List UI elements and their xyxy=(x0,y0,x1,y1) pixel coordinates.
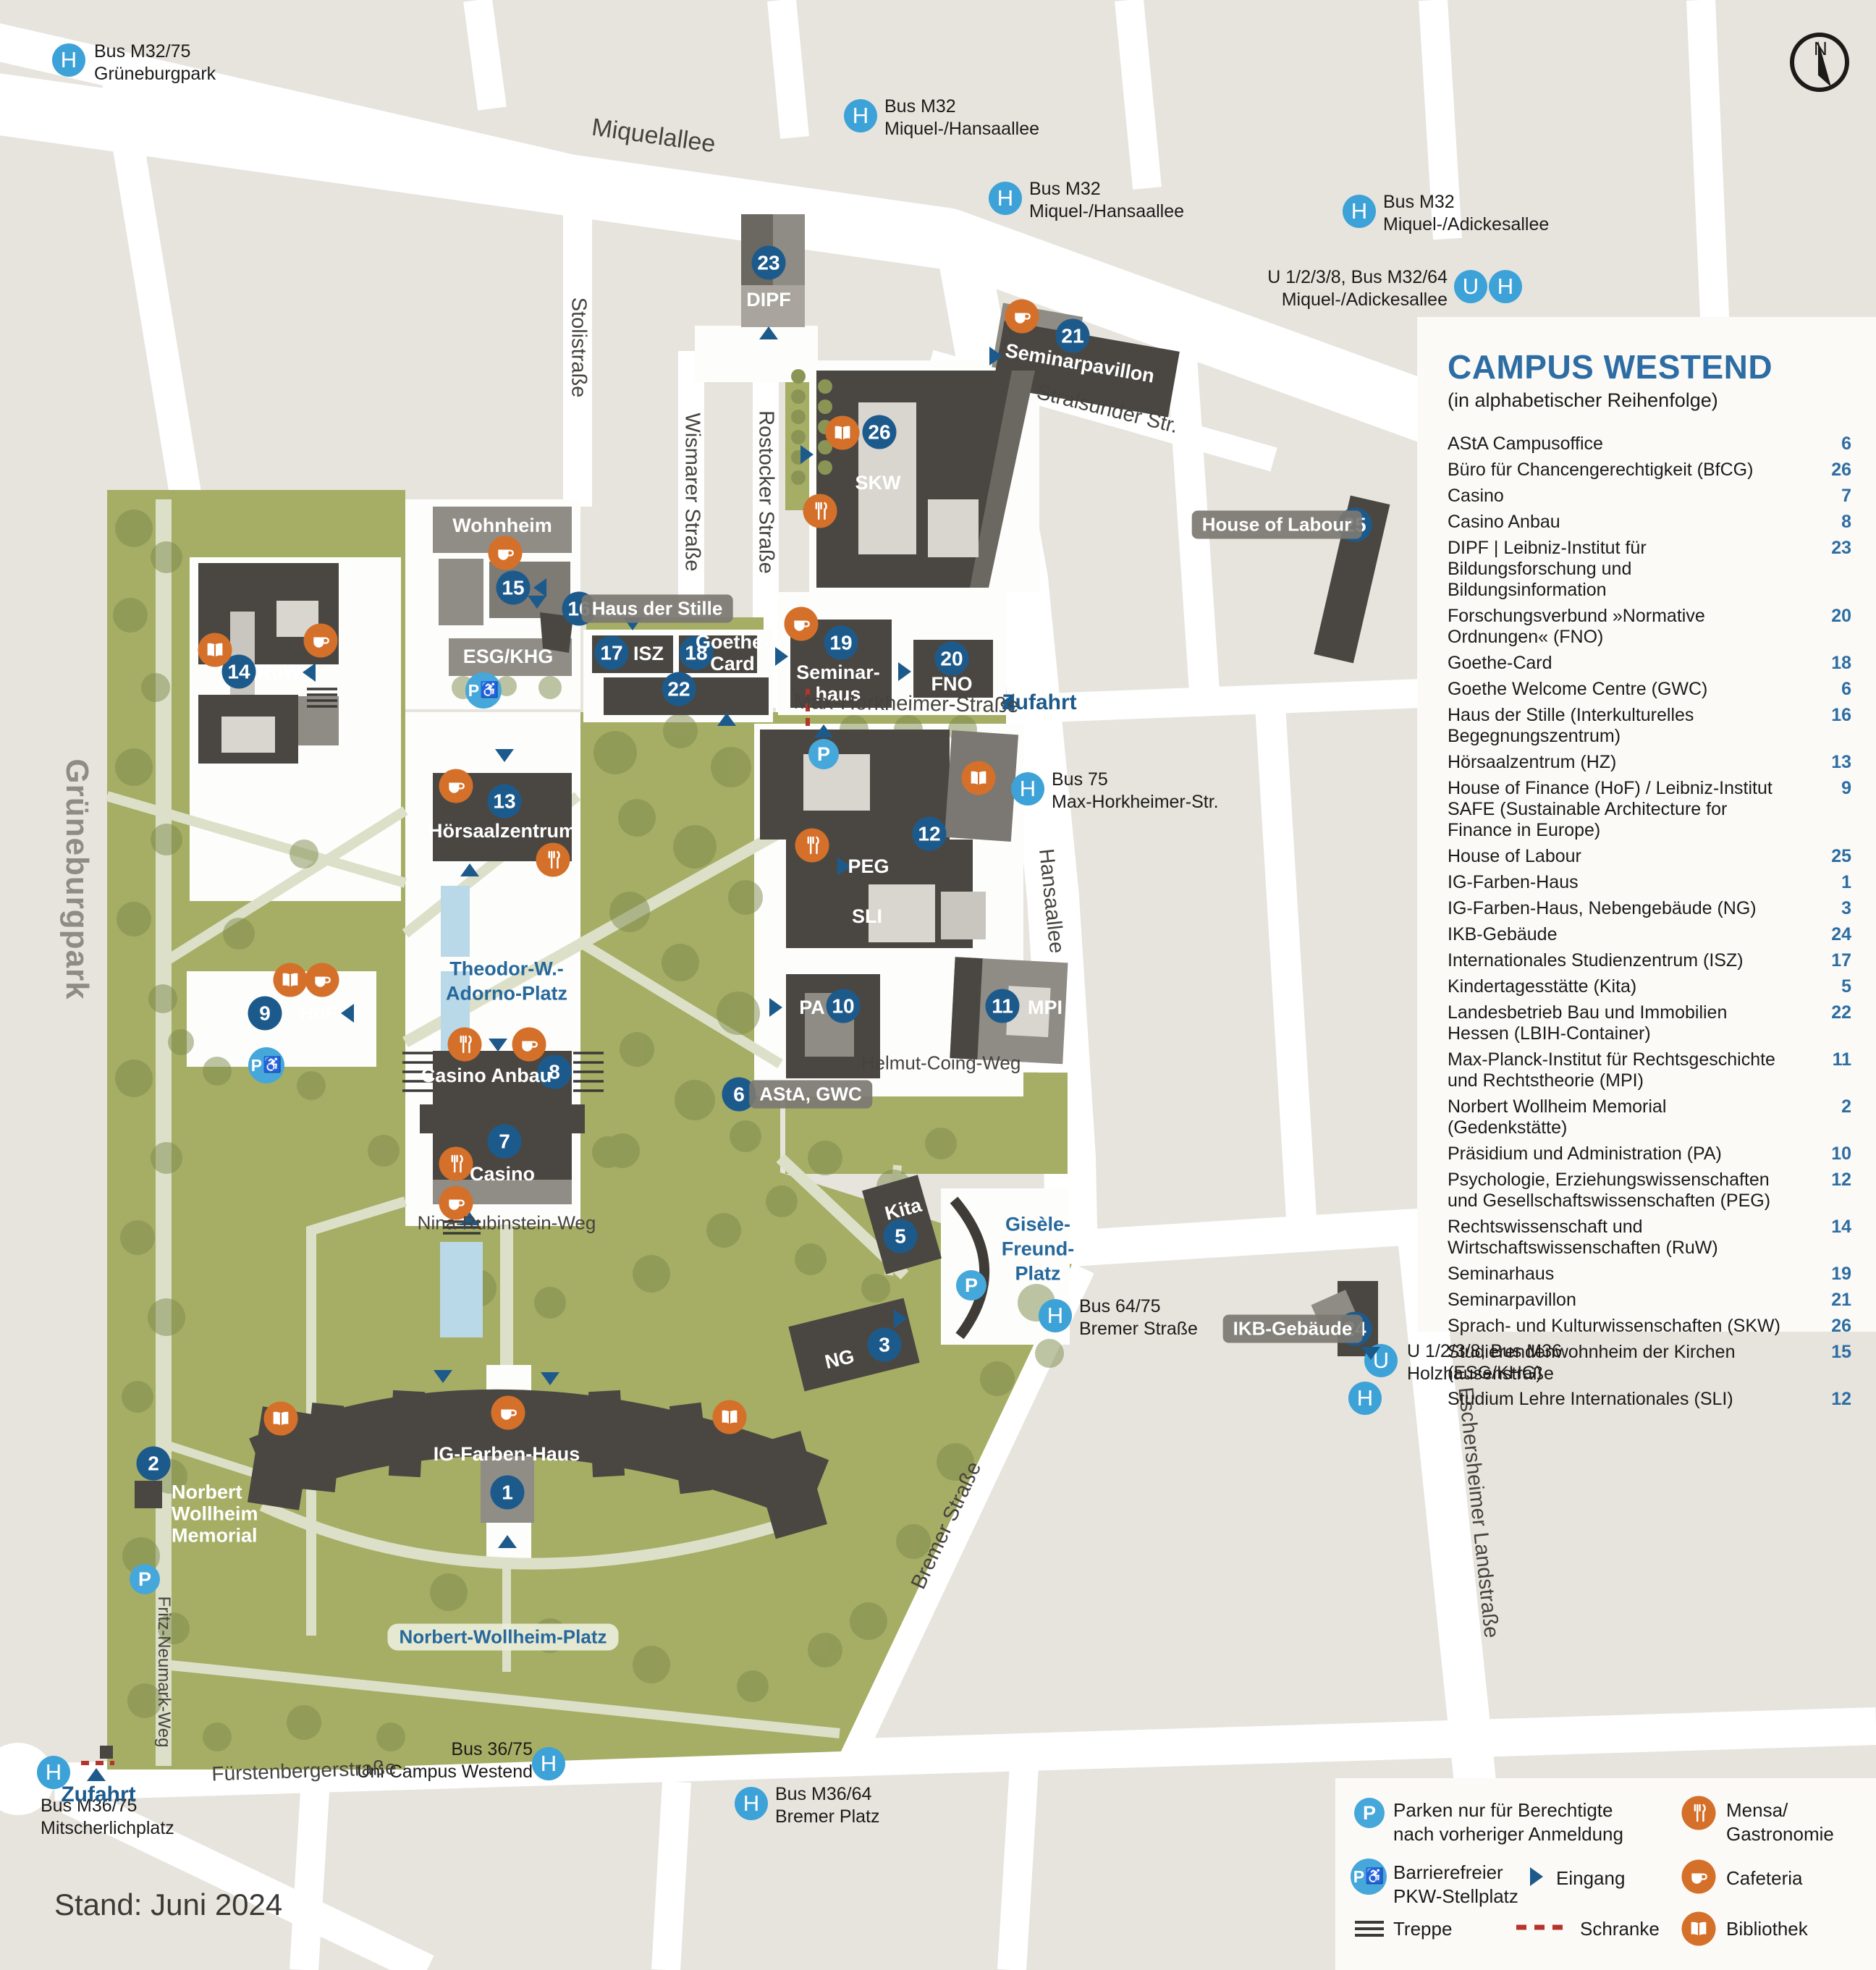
accessible-parking-icon: P♿ xyxy=(465,672,502,709)
building-badge-9: 9 xyxy=(248,997,282,1031)
building-label: SKW xyxy=(855,472,901,494)
building-badge-11: 11 xyxy=(986,989,1020,1023)
bus-stop-icon: H xyxy=(1348,1382,1382,1415)
building-number: 17 xyxy=(1822,950,1851,971)
building-list: AStA Campusoffice6Büro für Chancengerech… xyxy=(1448,434,1851,1410)
building-badge-17: 17 xyxy=(595,636,629,670)
building-number: 3 xyxy=(1833,898,1851,919)
cafeteria-icon xyxy=(489,536,523,570)
campus-map: { "compass": {"label": "N"}, "footer": {… xyxy=(0,0,1876,1970)
building-label: NG xyxy=(823,1345,856,1374)
building-list-row: IKB-Gebäude24 xyxy=(1448,924,1851,945)
cafeteria-icon xyxy=(304,624,338,658)
entrance-icon xyxy=(341,1004,354,1023)
street-label: Nina-Rubinstein-Weg xyxy=(418,1212,596,1235)
accessible-parking-icon: P♿ xyxy=(248,1047,284,1083)
entrance-icon xyxy=(541,1372,559,1385)
cafeteria-icon xyxy=(305,963,339,997)
building-label: HoF xyxy=(300,1002,337,1024)
building-label: ISZ xyxy=(633,643,664,664)
building-name: Goethe Welcome Centre (GWC) xyxy=(1448,679,1707,700)
zufahrt-label: Zufahrt xyxy=(1002,690,1076,715)
entrance-icon xyxy=(775,647,788,666)
entrance-icon xyxy=(498,1535,517,1548)
building-list-row: Haus der Stille (Interkulturelles Begegn… xyxy=(1448,705,1851,747)
building-index-panel: CAMPUS WESTEND (in alphabetischer Reihen… xyxy=(1417,317,1876,1332)
building-name: Seminarpavillon xyxy=(1448,1290,1576,1311)
building-name: Seminarhaus xyxy=(1448,1264,1554,1285)
building-list-row: Internationales Studienzentrum (ISZ)17 xyxy=(1448,950,1851,971)
street-label: Stolistraße xyxy=(567,297,591,398)
building-number: 20 xyxy=(1822,606,1851,627)
building-name: Psychologie, Erziehungswissenschaften un… xyxy=(1448,1170,1788,1212)
building-label: FNO xyxy=(931,673,973,695)
building-badge-3: 3 xyxy=(868,1328,902,1362)
building-name: Rechtswissenschaft und Wirtschaftswissen… xyxy=(1448,1217,1788,1259)
building-pill-label: IKB-Gebäude xyxy=(1223,1315,1363,1343)
building-label: Hörsaalzentrum xyxy=(428,820,576,842)
entrance-icon xyxy=(303,663,316,682)
building-number: 1 xyxy=(1833,872,1851,893)
building-list-row: AStA Campusoffice6 xyxy=(1448,434,1851,455)
transit-stop-label: Bus M32/75Grüneburgpark xyxy=(94,41,216,85)
street-label: Max-Horkheimer-Straße xyxy=(793,690,1019,718)
building-list-row: Seminarhaus19 xyxy=(1448,1264,1851,1285)
building-label: RuW xyxy=(257,661,301,683)
entrance-icon xyxy=(894,1309,907,1328)
ubahn-stop-icon: U xyxy=(1454,270,1487,303)
building-name: AStA Campusoffice xyxy=(1448,434,1603,455)
parking-icon: P xyxy=(808,739,839,769)
building-list-row: Goethe-Card18 xyxy=(1448,653,1851,674)
bibliothek-icon xyxy=(264,1402,298,1436)
cafeteria-icon xyxy=(1682,1860,1716,1894)
legend-eingang: Eingang xyxy=(1556,1867,1625,1890)
cafeteria-icon xyxy=(512,1028,546,1062)
transit-stop-label: Bus M36/64Bremer Platz xyxy=(775,1783,879,1828)
transit-stop-label: Bus 75Max-Horkheimer-Str. xyxy=(1052,769,1219,813)
building-label: PEG xyxy=(848,855,889,877)
building-label: ESG/KHG xyxy=(463,646,554,667)
entrance-icon xyxy=(898,662,911,681)
building-badge-1: 1 xyxy=(491,1476,525,1510)
building-number: 12 xyxy=(1822,1389,1851,1410)
building-list-row: Hörsaalzentrum (HZ)13 xyxy=(1448,752,1851,773)
building-list-row: IG-Farben-Haus, Nebengebäude (NG)3 xyxy=(1448,898,1851,919)
bibliothek-icon xyxy=(198,633,232,667)
panel-subtitle: (in alphabetischer Reihenfolge) xyxy=(1448,389,1851,412)
building-name: Studierendenwohnheim der Kirchen (ESG/KH… xyxy=(1448,1342,1788,1384)
legend-cafeteria: Cafeteria xyxy=(1726,1867,1803,1890)
building-label: Goethe- Card xyxy=(696,631,769,675)
building-label: Casino xyxy=(470,1163,535,1185)
building-badge-10: 10 xyxy=(827,989,861,1023)
building-name: House of Labour xyxy=(1448,846,1581,867)
building-name: Landesbetrieb Bau und Immobilien Hessen … xyxy=(1448,1002,1788,1044)
bibliothek-icon xyxy=(274,963,308,997)
building-label: Kita xyxy=(882,1194,924,1225)
bibliothek-icon xyxy=(1682,1912,1716,1946)
building-name: Max-Planck-Institut für Rechtsgeschichte… xyxy=(1448,1049,1788,1091)
building-number: 2 xyxy=(1833,1096,1851,1117)
building-name: House of Finance (HoF) / Leibniz-Institu… xyxy=(1448,778,1788,841)
entrance-icon xyxy=(533,578,546,597)
building-name: Kindertagesstätte (Kita) xyxy=(1448,976,1636,997)
legend-schranke: Schranke xyxy=(1580,1917,1660,1941)
building-label: Wohnheim xyxy=(452,515,552,536)
building-badge-7: 7 xyxy=(488,1125,522,1159)
legend-mensa: Mensa/Gastronomie xyxy=(1726,1798,1834,1846)
place-label: Norbert-Wollheim-Platz xyxy=(388,1624,619,1651)
building-badge-2: 2 xyxy=(137,1447,171,1481)
mensa-icon xyxy=(795,829,829,863)
building-badge-20: 20 xyxy=(935,642,969,676)
building-name: Hörsaalzentrum (HZ) xyxy=(1448,752,1616,773)
building-number: 8 xyxy=(1833,512,1851,533)
parking-icon: P xyxy=(956,1270,986,1301)
building-badge-19: 19 xyxy=(824,626,858,660)
legend-barrierefrei: BarrierefreierPKW-Stellplatz xyxy=(1393,1861,1518,1908)
building-number: 19 xyxy=(1822,1264,1851,1285)
building-pill-label: House of Labour xyxy=(1192,511,1362,539)
place-label: Grüneburgpark xyxy=(59,758,95,999)
entrance-icon xyxy=(759,326,778,339)
bus-stop-icon: H xyxy=(989,182,1022,215)
building-name: Studium Lehre Internationales (SLI) xyxy=(1448,1389,1733,1410)
building-label: SLI xyxy=(852,905,882,927)
cafeteria-icon xyxy=(439,769,473,803)
place-label: Gisèle- Freund- Platz xyxy=(1002,1212,1075,1285)
bus-stop-icon: H xyxy=(52,43,85,77)
building-name: Casino Anbau xyxy=(1448,512,1560,533)
building-list-row: House of Labour25 xyxy=(1448,846,1851,867)
entrance-icon xyxy=(989,347,1002,365)
building-name: Casino xyxy=(1448,486,1504,507)
building-badge-15: 15 xyxy=(497,571,531,605)
street-label: Hansaallee xyxy=(1034,847,1068,955)
bus-stop-icon: H xyxy=(735,1787,768,1820)
entrance-icon xyxy=(489,1039,507,1052)
building-list-row: Rechtswissenschaft und Wirtschaftswissen… xyxy=(1448,1217,1851,1259)
panel-title: CAMPUS WESTEND xyxy=(1448,347,1851,386)
legend-treppe: Treppe xyxy=(1393,1917,1452,1941)
barrier-icon xyxy=(1516,1925,1563,1930)
building-number: 23 xyxy=(1822,538,1851,559)
building-label: Casino Anbau xyxy=(421,1065,552,1086)
building-list-row: Psychologie, Erziehungswissenschaften un… xyxy=(1448,1170,1851,1212)
building-number: 24 xyxy=(1822,924,1851,945)
building-number: 10 xyxy=(1822,1143,1851,1164)
building-number: 16 xyxy=(1822,705,1851,726)
street-label: Wismarer Straße xyxy=(680,413,704,571)
bibliothek-icon xyxy=(826,416,860,450)
mensa-icon xyxy=(1682,1796,1716,1830)
building-badge-12: 12 xyxy=(913,817,947,851)
building-list-row: Studierendenwohnheim der Kirchen (ESG/KH… xyxy=(1448,1342,1851,1384)
street-label: Rostocker Straße xyxy=(754,410,778,574)
building-badge-23: 23 xyxy=(752,246,786,280)
bus-stop-icon: H xyxy=(1011,772,1044,806)
building-number: 9 xyxy=(1833,778,1851,799)
building-list-row: Kindertagesstätte (Kita)5 xyxy=(1448,976,1851,997)
building-badge-26: 26 xyxy=(863,415,897,449)
building-number: 26 xyxy=(1822,1316,1851,1337)
parking-icon: P xyxy=(130,1564,160,1594)
place-label: Theodor-W.- Adorno-Platz xyxy=(446,957,567,1006)
cafeteria-icon xyxy=(491,1396,525,1430)
legend-bibliothek: Bibliothek xyxy=(1726,1917,1808,1941)
accessible-parking-icon: P♿ xyxy=(1351,1859,1387,1895)
building-list-row: DIPF | Leibniz-Institut für Bildungsfors… xyxy=(1448,538,1851,601)
building-badge-13: 13 xyxy=(488,785,522,819)
street-label: Eschersheimer Landstraße xyxy=(1453,1386,1503,1639)
entrance-icon xyxy=(769,998,782,1017)
cafeteria-icon xyxy=(785,607,819,641)
building-number: 6 xyxy=(1833,434,1851,455)
map-legend: P Parken nur für Berechtigtenach vorheri… xyxy=(1335,1778,1876,1970)
street-label: Bremer Straße xyxy=(907,1458,986,1593)
building-number: 25 xyxy=(1822,846,1851,867)
building-label: Norbert Wollheim Memorial xyxy=(172,1481,258,1547)
street-label: Fritz-Neumark-Weg xyxy=(153,1597,174,1748)
building-list-row: Präsidium und Administration (PA)10 xyxy=(1448,1143,1851,1164)
mensa-icon xyxy=(803,494,837,528)
building-badge-21: 21 xyxy=(1056,319,1090,353)
entrance-icon xyxy=(434,1370,452,1383)
compass-icon: N xyxy=(1786,20,1853,100)
entrance-icon xyxy=(800,445,814,464)
building-number: 14 xyxy=(1822,1217,1851,1238)
building-number: 15 xyxy=(1822,1342,1851,1363)
building-label: IG-Farben-Haus xyxy=(434,1443,580,1465)
building-number: 13 xyxy=(1822,752,1851,773)
transit-stop-label: U 1/2/3/8, Bus M32/64Miquel-/Adickesalle… xyxy=(1267,266,1448,311)
building-name: IG-Farben-Haus xyxy=(1448,872,1579,893)
building-name: Norbert Wollheim Memorial (Gedenkstätte) xyxy=(1448,1096,1788,1138)
building-name: Forschungsverbund »Normative Ordnungen« … xyxy=(1448,606,1788,648)
entrance-icon xyxy=(87,1768,106,1781)
building-number: 18 xyxy=(1822,653,1851,674)
legend-parken: Parken nur für Berechtigtenach vorherige… xyxy=(1393,1798,1623,1846)
bus-stop-icon: H xyxy=(844,99,877,132)
building-name: Haus der Stille (Interkulturelles Begegn… xyxy=(1448,705,1788,747)
transit-stop-label: Bus M32Miquel-/Adickesallee xyxy=(1383,191,1549,236)
building-list-row: Landesbetrieb Bau und Immobilien Hessen … xyxy=(1448,1002,1851,1044)
building-list-row: Norbert Wollheim Memorial (Gedenkstätte)… xyxy=(1448,1096,1851,1138)
entrance-icon xyxy=(814,724,833,737)
mensa-icon xyxy=(439,1147,473,1181)
svg-text:N: N xyxy=(1814,38,1828,59)
street-label: Helmut-Coing-Weg xyxy=(861,1052,1021,1075)
building-number: 12 xyxy=(1822,1170,1851,1191)
building-name: Internationales Studienzentrum (ISZ) xyxy=(1448,950,1744,971)
bus-stop-icon: H xyxy=(532,1747,565,1780)
zufahrt-label: Zufahrt xyxy=(61,1783,135,1807)
bus-stop-icon: H xyxy=(1039,1299,1072,1332)
building-number: 22 xyxy=(1822,1002,1851,1023)
street-label: Miquelallee xyxy=(590,114,717,159)
entrance-icon xyxy=(717,713,736,726)
building-pill-label: Haus der Stille xyxy=(582,595,733,623)
transit-stop-label: Bus 64/75Bremer Straße xyxy=(1079,1295,1198,1340)
building-list-row: Sprach- und Kulturwissenschaften (SKW)26 xyxy=(1448,1316,1851,1337)
entrance-icon xyxy=(460,863,479,876)
building-number: 6 xyxy=(1833,679,1851,700)
building-number: 11 xyxy=(1824,1049,1851,1070)
building-number: 7 xyxy=(1833,486,1851,507)
building-list-row: House of Finance (HoF) / Leibniz-Institu… xyxy=(1448,778,1851,841)
building-list-row: Forschungsverbund »Normative Ordnungen« … xyxy=(1448,606,1851,648)
mensa-icon xyxy=(448,1028,482,1062)
building-name: IG-Farben-Haus, Nebengebäude (NG) xyxy=(1448,898,1757,919)
building-name: IKB-Gebäude xyxy=(1448,924,1558,945)
stairs-icon xyxy=(1355,1917,1384,1940)
building-label: DIPF xyxy=(746,289,791,310)
building-list-row: Büro für Chancengerechtigkeit (BfCG)26 xyxy=(1448,460,1851,481)
building-label: PA xyxy=(799,997,825,1018)
mensa-icon xyxy=(536,843,570,877)
building-list-row: Casino7 xyxy=(1448,486,1851,507)
bus-stop-icon: H xyxy=(1489,270,1522,303)
building-label: MPI xyxy=(1028,997,1062,1018)
building-badge-22: 22 xyxy=(662,672,696,706)
building-list-row: Goethe Welcome Centre (GWC)6 xyxy=(1448,679,1851,700)
cafeteria-icon xyxy=(1005,300,1039,334)
building-number: 5 xyxy=(1833,976,1851,997)
transit-stop-label: Bus M32Miquel-/Hansaallee xyxy=(884,96,1039,140)
building-list-row: IG-Farben-Haus1 xyxy=(1448,872,1851,893)
building-name: Goethe-Card xyxy=(1448,653,1552,674)
map-date: Stand: Juni 2024 xyxy=(54,1887,282,1922)
building-pill-label: AStA, GWC xyxy=(749,1081,872,1109)
building-name: Sprach- und Kulturwissenschaften (SKW) xyxy=(1448,1316,1780,1337)
entrance-icon xyxy=(1361,1347,1380,1360)
building-list-row: Casino Anbau8 xyxy=(1448,512,1851,533)
transit-stop-label: Bus M32Miquel-/Hansaallee xyxy=(1029,178,1184,223)
bus-stop-icon: H xyxy=(1343,195,1376,228)
building-list-row: Studium Lehre Internationales (SLI)12 xyxy=(1448,1389,1851,1410)
building-list-row: Max-Planck-Institut für Rechtsgeschichte… xyxy=(1448,1049,1851,1091)
building-list-row: Seminarpavillon21 xyxy=(1448,1290,1851,1311)
bibliothek-icon xyxy=(713,1400,747,1434)
building-name: DIPF | Leibniz-Institut für Bildungsfors… xyxy=(1448,538,1788,601)
street-label: Stralsunder Str. xyxy=(1034,381,1180,439)
building-name: Büro für Chancengerechtigkeit (BfCG) xyxy=(1448,460,1753,481)
entrance-icon xyxy=(1530,1867,1543,1886)
building-number: 26 xyxy=(1822,460,1851,481)
building-name: Präsidium und Administration (PA) xyxy=(1448,1143,1722,1164)
entrance-icon xyxy=(528,596,546,609)
parking-icon: P xyxy=(1354,1798,1385,1828)
entrance-icon xyxy=(495,749,514,762)
building-number: 21 xyxy=(1822,1290,1851,1311)
bibliothek-icon xyxy=(962,761,996,795)
